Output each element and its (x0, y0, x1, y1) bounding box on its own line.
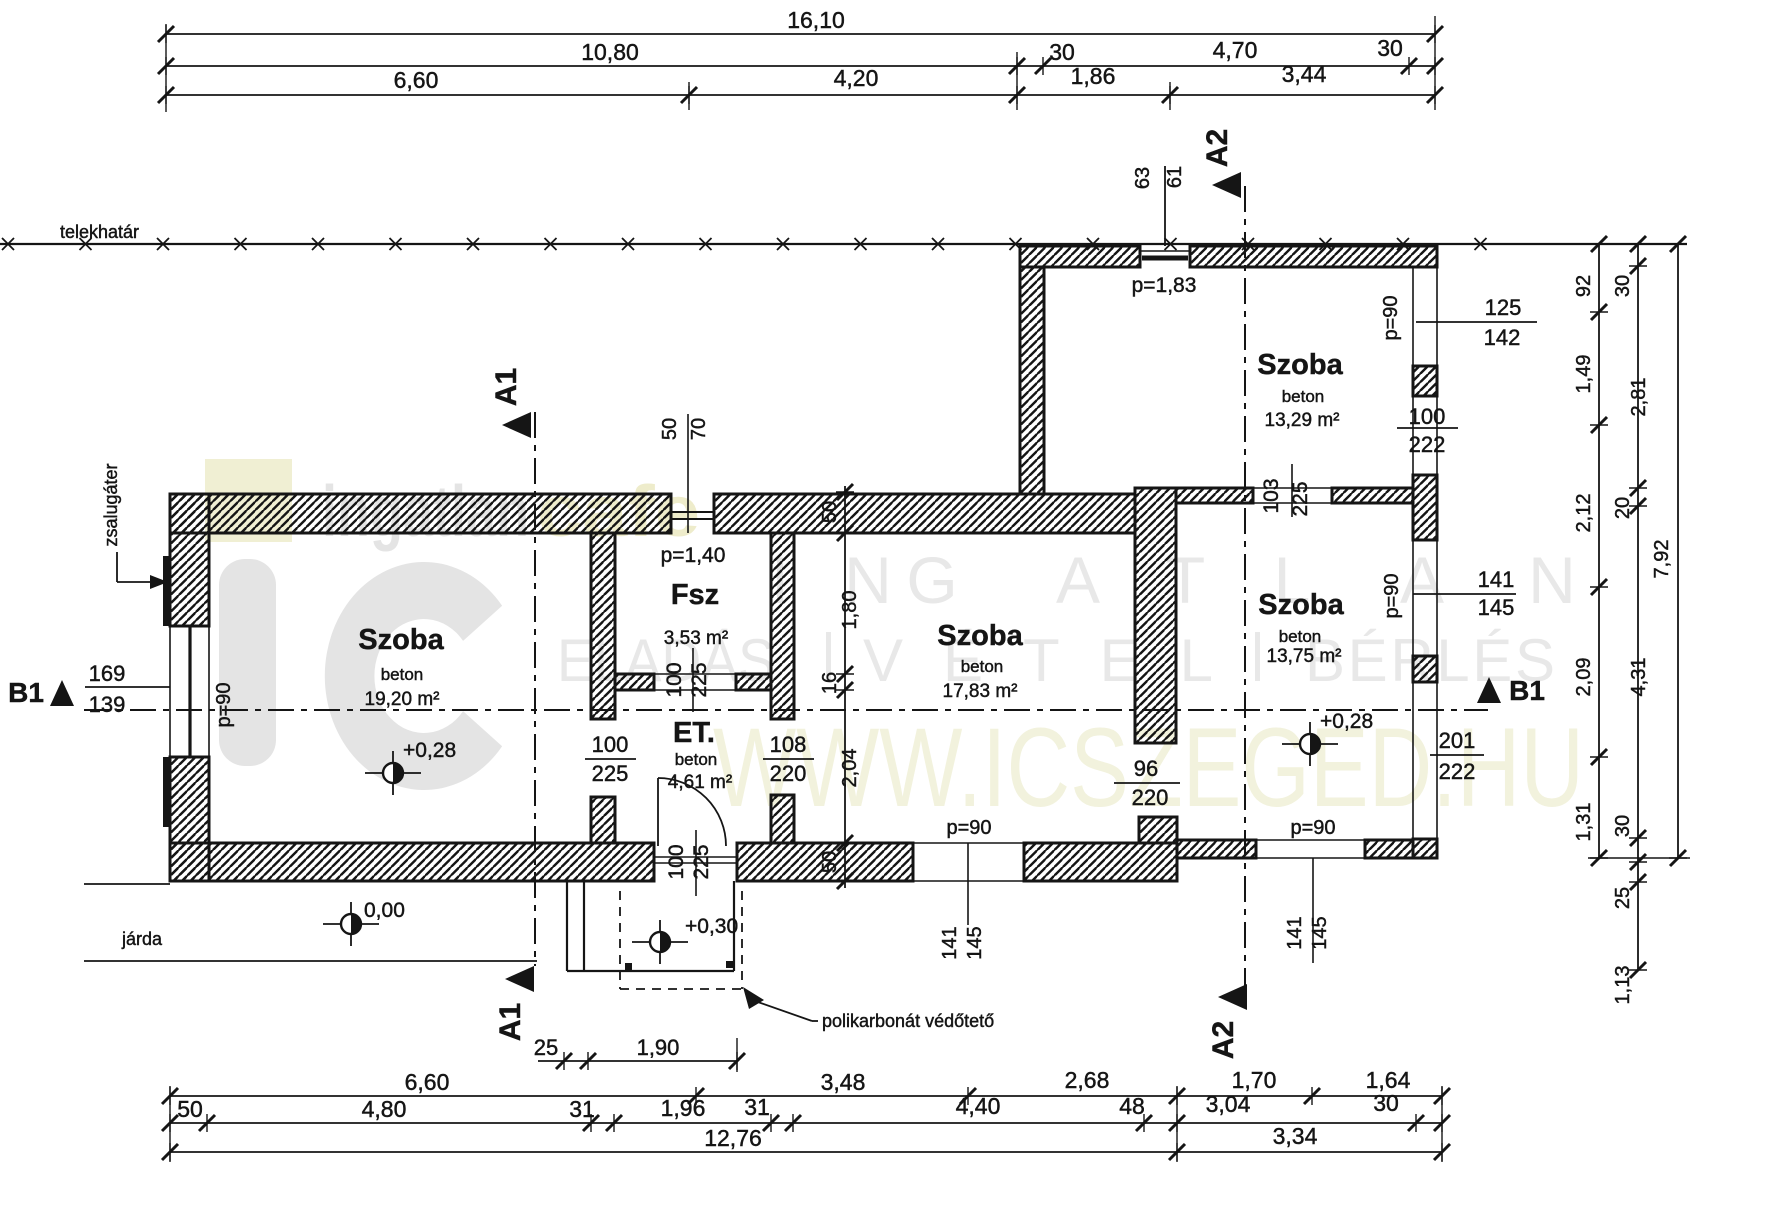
svg-text:145: 145 (1478, 595, 1515, 620)
svg-text:96: 96 (1134, 756, 1158, 781)
svg-text:A1: A1 (494, 1003, 527, 1041)
svg-text:25: 25 (534, 1035, 558, 1060)
svg-text:4,70: 4,70 (1213, 37, 1258, 63)
svg-text:2,81: 2,81 (1628, 378, 1650, 417)
svg-text:30: 30 (1612, 275, 1634, 297)
svg-text:N: N (1528, 543, 1576, 617)
svg-text:16,10: 16,10 (787, 7, 845, 33)
svg-text:10,80: 10,80 (581, 39, 639, 65)
svg-text:6,60: 6,60 (405, 1069, 450, 1095)
svg-text:A2: A2 (1207, 1021, 1240, 1059)
svg-text:beton: beton (381, 665, 424, 684)
svg-text:Szoba: Szoba (1258, 589, 1344, 621)
svg-text:100: 100 (592, 732, 629, 757)
svg-text:1,86: 1,86 (1071, 63, 1116, 89)
svg-text:1,96: 1,96 (661, 1095, 706, 1121)
svg-text:225: 225 (1289, 481, 1312, 516)
svg-text:3,48: 3,48 (821, 1069, 866, 1095)
svg-text:1,49: 1,49 (1573, 355, 1595, 394)
svg-text:125: 125 (1485, 295, 1522, 320)
svg-text:50: 50 (177, 1096, 203, 1122)
svg-text:4,80: 4,80 (362, 1096, 407, 1122)
svg-text:B1: B1 (8, 677, 44, 708)
svg-text:2,68: 2,68 (1065, 1067, 1110, 1093)
svg-text:61: 61 (1164, 166, 1186, 188)
svg-text:220: 220 (1132, 785, 1169, 810)
svg-text:1,13: 1,13 (1612, 966, 1634, 1005)
svg-text:járda: járda (121, 929, 163, 949)
svg-text:100: 100 (1409, 404, 1446, 429)
svg-text:222: 222 (1409, 432, 1446, 457)
svg-text:25: 25 (1612, 887, 1634, 909)
svg-text:50: 50 (659, 418, 681, 440)
svg-text:A: A (1056, 543, 1100, 617)
svg-text:p=90: p=90 (1290, 817, 1335, 839)
svg-text:7,92: 7,92 (1651, 540, 1673, 579)
svg-text:beton: beton (1279, 627, 1322, 646)
svg-text:3,44: 3,44 (1282, 61, 1327, 87)
svg-text:19,20 m²: 19,20 m² (365, 689, 440, 710)
svg-text:+0,28: +0,28 (403, 739, 456, 762)
svg-text:50: 50 (819, 501, 841, 523)
svg-text:31: 31 (744, 1094, 770, 1120)
svg-text:beton: beton (675, 750, 718, 769)
svg-text:2,04: 2,04 (839, 749, 861, 788)
svg-text:50: 50 (819, 851, 841, 873)
svg-text:92: 92 (1573, 275, 1595, 297)
svg-text:139: 139 (89, 692, 126, 717)
svg-text:4,40: 4,40 (956, 1093, 1001, 1119)
svg-text:4,31: 4,31 (1628, 658, 1650, 697)
svg-text:p=90: p=90 (946, 817, 991, 839)
svg-text:30: 30 (1373, 1090, 1399, 1116)
svg-text:A1: A1 (490, 368, 523, 406)
svg-text:17,83 m²: 17,83 m² (943, 681, 1018, 702)
svg-text:+0,30: +0,30 (685, 915, 738, 938)
svg-text:polikarbonát védőtető: polikarbonát védőtető (822, 1011, 994, 1031)
svg-text:20: 20 (1612, 497, 1634, 519)
svg-text:1,80: 1,80 (839, 591, 861, 630)
svg-text:6,60: 6,60 (394, 67, 439, 93)
svg-text:A2: A2 (1201, 129, 1234, 167)
svg-text:2,12: 2,12 (1573, 494, 1595, 533)
svg-text:p=90: p=90 (213, 682, 235, 727)
svg-text:225: 225 (688, 662, 711, 697)
svg-text:telekhatár: telekhatár (60, 222, 139, 242)
svg-text:0,00: 0,00 (364, 899, 405, 922)
svg-text:4,61 m²: 4,61 m² (668, 772, 732, 793)
svg-text:225: 225 (592, 761, 629, 786)
svg-text:13,75 m²: 13,75 m² (1267, 646, 1342, 667)
svg-text:103: 103 (1260, 478, 1283, 513)
svg-text:Szoba: Szoba (937, 620, 1023, 652)
svg-text:141: 141 (1284, 916, 1306, 949)
svg-text:63: 63 (1132, 167, 1154, 189)
svg-text:48: 48 (1119, 1093, 1145, 1119)
svg-text:2,09: 2,09 (1573, 658, 1595, 697)
svg-text:145: 145 (964, 926, 986, 959)
svg-text:B1: B1 (1509, 675, 1545, 706)
svg-text:141: 141 (1478, 567, 1515, 592)
svg-text:zsalugáter: zsalugáter (101, 463, 121, 546)
svg-text:108: 108 (770, 732, 807, 757)
svg-text:70: 70 (688, 418, 710, 440)
svg-text:222: 222 (1439, 759, 1476, 784)
svg-text:12,76: 12,76 (704, 1125, 762, 1151)
svg-text:1,90: 1,90 (637, 1035, 680, 1060)
svg-text:p=1,83: p=1,83 (1132, 274, 1197, 297)
svg-text:100: 100 (663, 662, 686, 697)
svg-text:3,34: 3,34 (1273, 1123, 1318, 1149)
svg-text:Fsz: Fsz (671, 579, 719, 611)
svg-text:141: 141 (939, 926, 961, 959)
svg-text:3,53 m²: 3,53 m² (664, 628, 728, 649)
svg-text:beton: beton (1282, 387, 1325, 406)
svg-text:ET.: ET. (673, 717, 715, 749)
svg-text:145: 145 (1309, 916, 1331, 949)
svg-text:3,04: 3,04 (1206, 1091, 1251, 1117)
svg-text:p=1,40: p=1,40 (661, 544, 726, 567)
svg-text:16: 16 (819, 672, 841, 694)
svg-text:1,70: 1,70 (1232, 1067, 1277, 1093)
svg-text:30: 30 (1612, 815, 1634, 837)
svg-text:G: G (906, 543, 957, 617)
svg-text:201: 201 (1439, 728, 1476, 753)
svg-text:Szoba: Szoba (358, 624, 444, 656)
svg-text:100: 100 (665, 844, 688, 879)
svg-text:13,29 m²: 13,29 m² (1265, 410, 1340, 431)
svg-text:p=90: p=90 (1380, 295, 1402, 340)
svg-text:beton: beton (961, 657, 1004, 676)
svg-text:Szoba: Szoba (1257, 349, 1343, 381)
svg-text:169: 169 (89, 661, 126, 686)
svg-text:142: 142 (1484, 325, 1521, 350)
svg-text:220: 220 (770, 761, 807, 786)
svg-text:31: 31 (569, 1096, 595, 1122)
svg-text:4,20: 4,20 (834, 65, 879, 91)
svg-text:30: 30 (1049, 39, 1075, 65)
svg-text:30: 30 (1377, 35, 1403, 61)
svg-text:p=90: p=90 (1381, 573, 1403, 618)
svg-text:225: 225 (690, 844, 713, 879)
svg-text:1,31: 1,31 (1573, 803, 1595, 842)
svg-text:+0,28: +0,28 (1320, 710, 1373, 733)
